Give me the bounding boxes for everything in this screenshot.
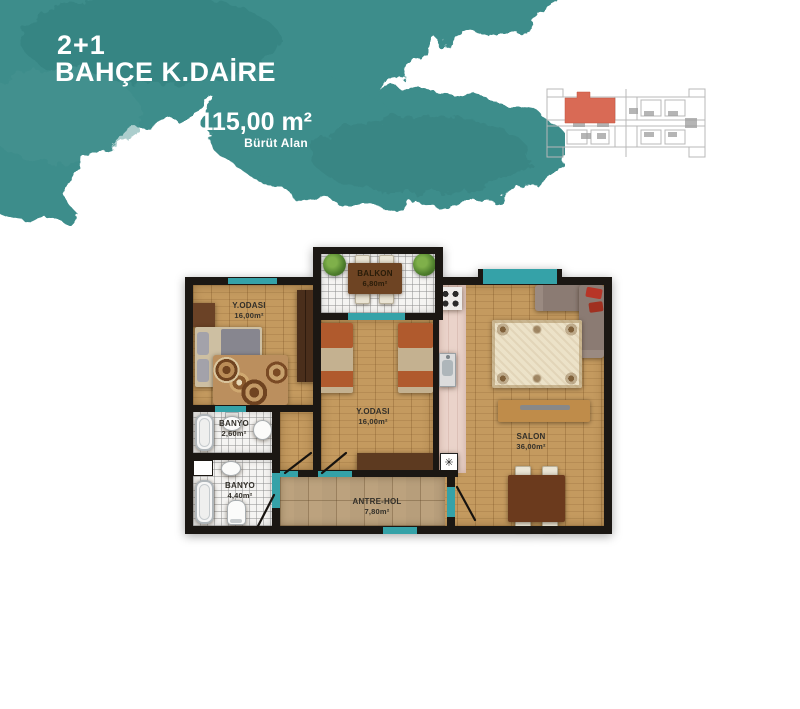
room-label-balcony: BALKON 6,80m² bbox=[330, 269, 420, 288]
gross-area-value: 115,00 m² bbox=[150, 108, 312, 137]
room-label-bedroom-2: Y.ODASI 16,00m² bbox=[328, 407, 418, 426]
apartment-floor-plan: ✳ bbox=[185, 247, 612, 534]
room-label-salon: SALON 36,00m² bbox=[486, 432, 576, 451]
room-label-bathroom-1: BANYO 2,60m² bbox=[204, 419, 264, 438]
unit-title: BAHÇE K.DAİRE bbox=[55, 57, 276, 88]
room-label-entry-hall: ANTRE-HOL 7,80m² bbox=[332, 497, 422, 516]
room-label-bathroom-2: BANYO 4,40m² bbox=[210, 481, 270, 500]
room-label-bedroom-1: Y.ODASI 16,00m² bbox=[204, 301, 294, 320]
floor-plan-page: 2+1 BAHÇE K.DAİRE 115,00 m² Bürüt Alan bbox=[0, 0, 800, 709]
gross-area-caption: Bürüt Alan bbox=[150, 136, 308, 150]
building-key-plan bbox=[545, 84, 707, 162]
